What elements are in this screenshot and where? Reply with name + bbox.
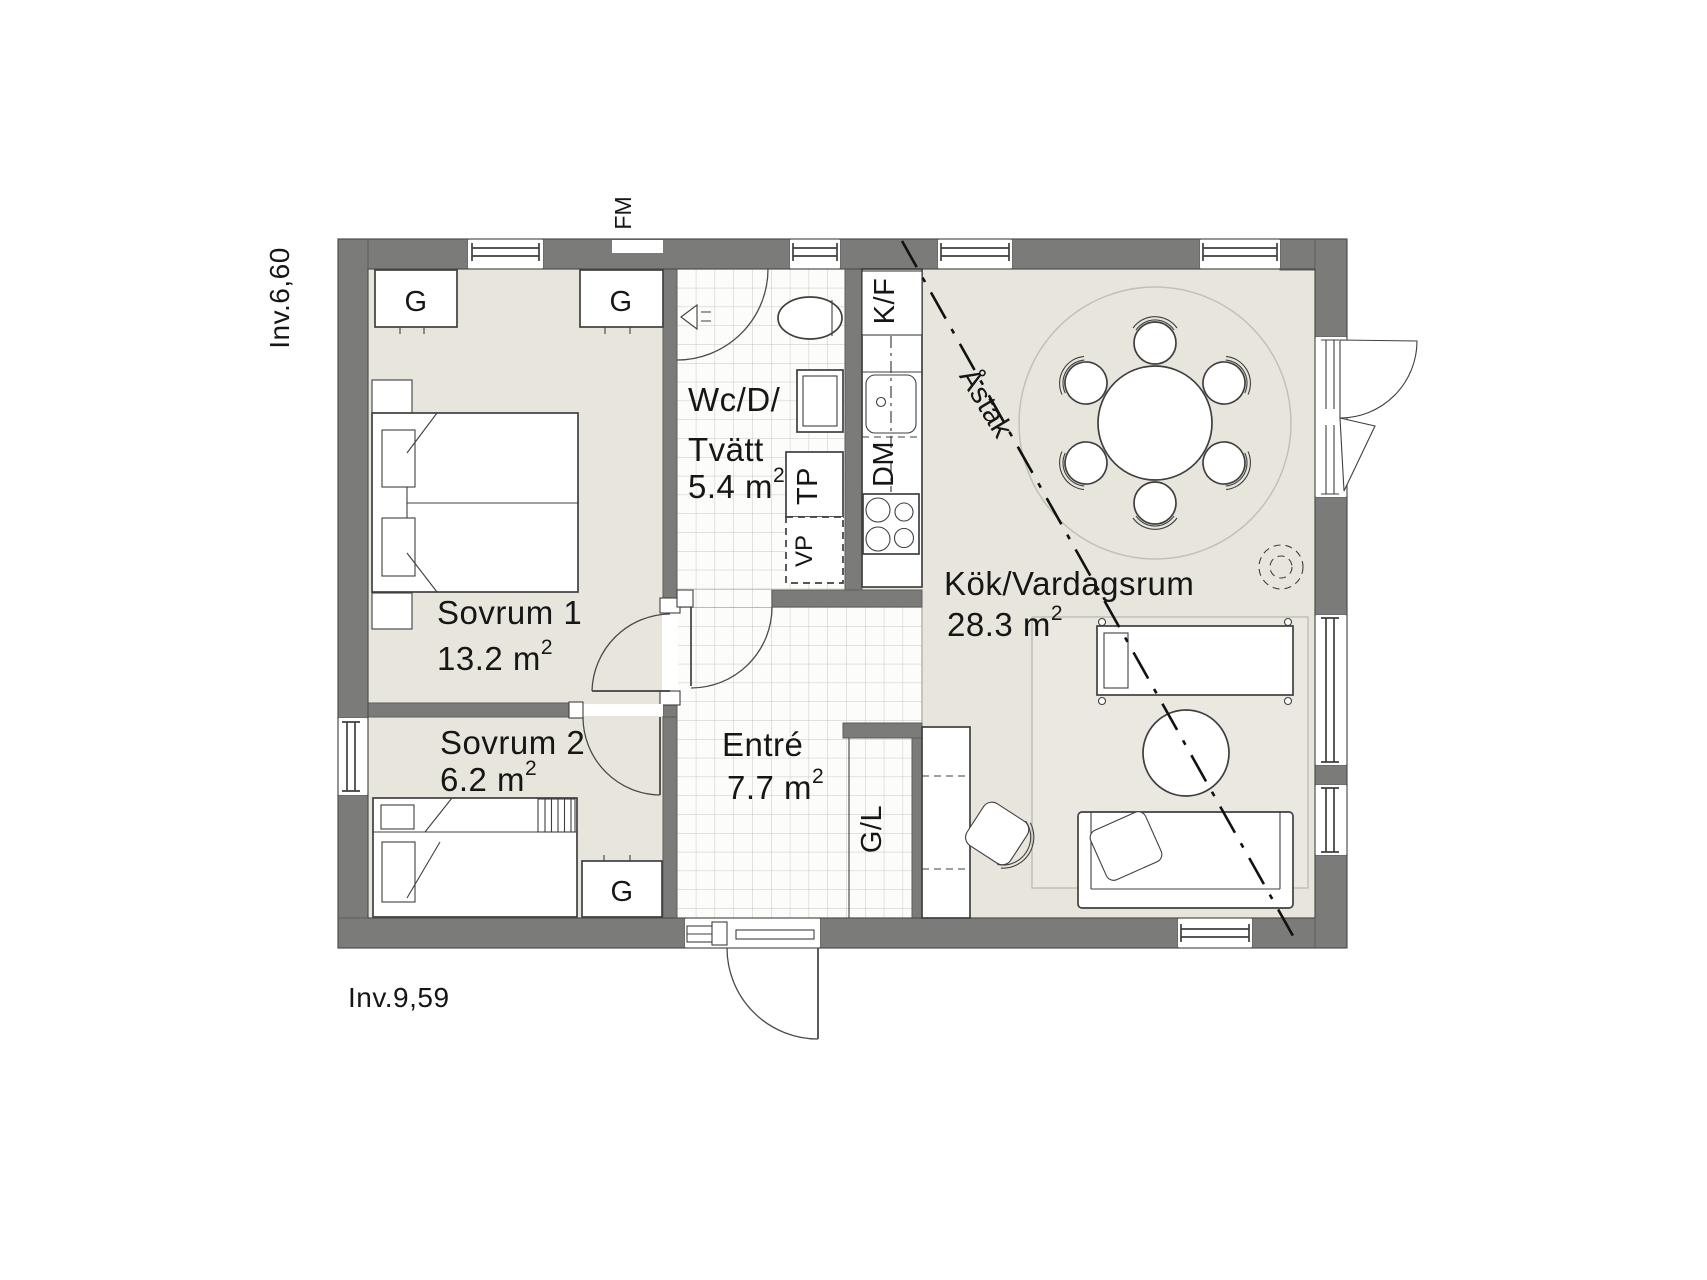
- dining-table: [1098, 366, 1212, 480]
- exterior-wall-top-2: [543, 239, 790, 269]
- window-living-east-1: [1316, 615, 1346, 765]
- door-entrance: [712, 919, 820, 1039]
- bunk-bed: [373, 798, 577, 917]
- window-bedroom1: [468, 240, 543, 268]
- window-living-east-2: [1316, 785, 1346, 855]
- interior-wall-bedroom1-east: [663, 269, 677, 613]
- stove: [863, 494, 919, 554]
- coffee-table: [1143, 710, 1229, 796]
- sideboard: [1097, 619, 1293, 705]
- room-label-kok: Kök/Vardagsrum: [944, 565, 1194, 602]
- room-label-sovrum1: Sovrum 1: [437, 594, 582, 631]
- double-bed: [372, 380, 578, 629]
- nightstand-2: [372, 593, 412, 629]
- interior-wall-bedrooms: [368, 703, 583, 717]
- window-living-south: [1178, 919, 1252, 947]
- room-label-wc-line2: Tvätt: [688, 431, 764, 468]
- wardrobe-label-1: G: [404, 286, 427, 318]
- dryer-label: TP: [792, 467, 824, 505]
- area-label-sovrum2: 6.2 m2: [440, 757, 537, 798]
- door-double-garden: [1316, 337, 1417, 497]
- pillow-1: [382, 430, 415, 487]
- interior-wall-bath-kitchen: [845, 269, 862, 590]
- interior-wall-bath-south: [772, 590, 922, 607]
- interior-wall-bedroom2-east: [663, 717, 677, 918]
- sofa: [1078, 809, 1293, 908]
- window-bedroom2: [339, 718, 367, 795]
- area-label-wc: 5.4 m2: [688, 464, 785, 505]
- interior-wall-closet-top: [843, 723, 922, 738]
- door-leaf-lower: [1340, 418, 1375, 491]
- heat-pump-label: VP: [791, 535, 818, 567]
- inner-height-label-top: Inv.6,60: [264, 247, 295, 349]
- bunk-pillow-top: [381, 805, 414, 829]
- wardrobe-label-2: G: [609, 286, 632, 318]
- exterior-wall-right-3: [1315, 855, 1347, 948]
- wardrobe-label-3: G: [610, 876, 633, 908]
- exterior-wall-right-2: [1315, 497, 1347, 615]
- window-kitchen: [938, 240, 1012, 268]
- exterior-wall-right-1: [1315, 239, 1347, 337]
- room-label-entre: Entré: [722, 726, 803, 763]
- pillow-2: [382, 518, 415, 576]
- area-label-entre: 7.7 m2: [727, 765, 824, 806]
- window-dining: [1200, 240, 1280, 268]
- dishwasher-label: DM: [868, 441, 900, 487]
- fresh-air-vent: [612, 240, 663, 253]
- desk: [922, 727, 970, 918]
- exterior-wall-left-1: [338, 239, 368, 718]
- toilet: [778, 297, 842, 339]
- exterior-wall-bottom-1: [338, 918, 685, 948]
- floor-plan-page: Sovrum 1 13.2 m2 Sovrum 2 6.2 m2 Wc/D/ T…: [0, 0, 1707, 1280]
- nightstand-1: [372, 380, 412, 413]
- hall-closet-label: G/L: [856, 805, 888, 853]
- vent-label-fm: FM: [610, 196, 636, 229]
- bunk-ladder: [538, 799, 575, 832]
- exterior-wall-right-mullion: [1315, 765, 1347, 785]
- exterior-wall-top-4: [1012, 239, 1200, 269]
- exterior-wall-bottom-2: [820, 918, 1178, 948]
- floor-plan-svg: Sovrum 1 13.2 m2 Sovrum 2 6.2 m2 Wc/D/ T…: [0, 0, 1707, 1280]
- area-label-kok: 28.3 m2: [947, 602, 1063, 643]
- inner-height-label-bottom: Inv.9,59: [348, 982, 450, 1013]
- room-label-sovrum2: Sovrum 2: [440, 724, 585, 761]
- door-leaf-upper: [1340, 340, 1417, 418]
- interior-wall-closet-east: [912, 738, 922, 918]
- area-label-sovrum1: 13.2 m2: [437, 636, 553, 677]
- fridge-freezer-label: K/F: [869, 278, 901, 325]
- floor-tiles-doorway: [693, 590, 772, 607]
- exterior-wall-top-3: [840, 239, 938, 269]
- washbasin: [797, 370, 843, 432]
- room-label-wc-line1: Wc/D/: [688, 381, 781, 418]
- window-bathroom: [790, 240, 840, 268]
